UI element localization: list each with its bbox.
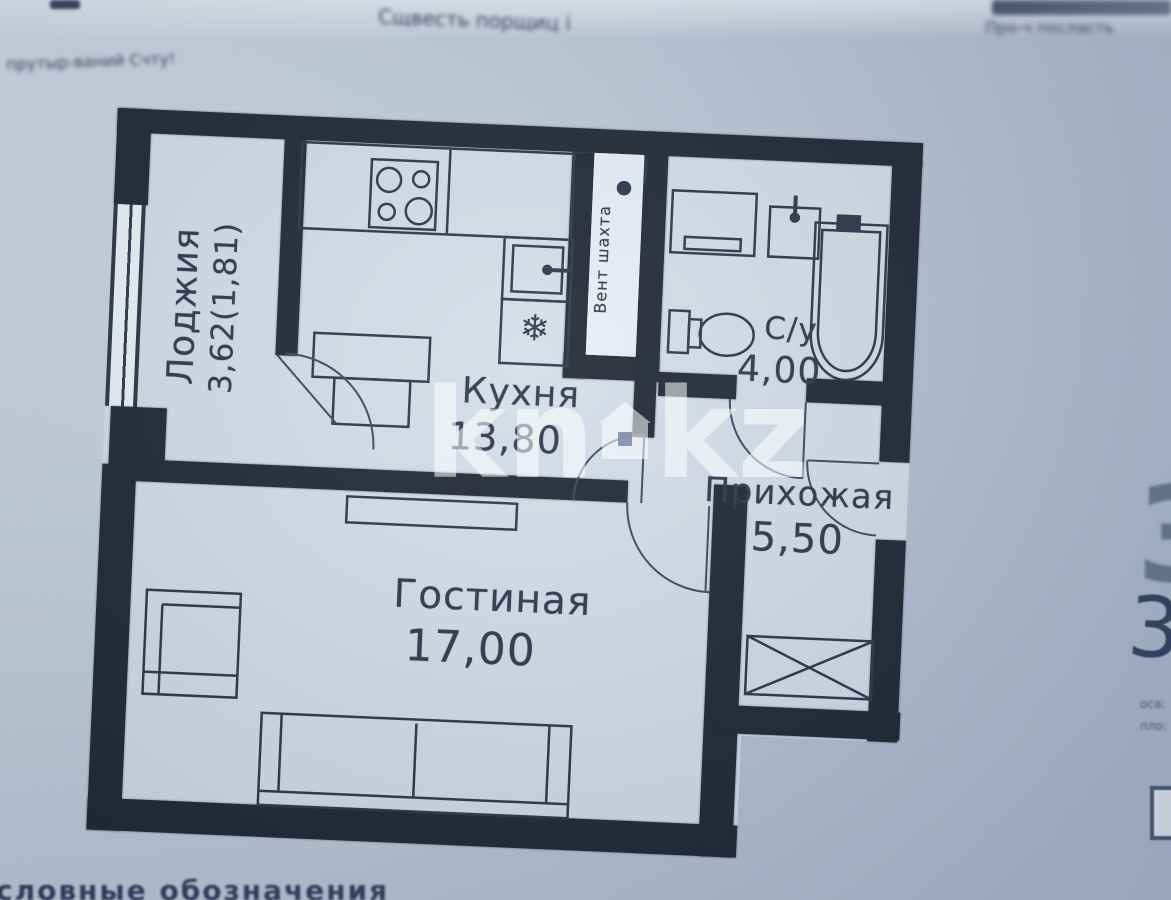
door-arc-balcony [273, 353, 377, 449]
room-area: 5,50 [689, 511, 906, 569]
margin-small-line: пло: [1140, 716, 1167, 738]
snowflake-icon: ❄ [504, 307, 566, 351]
floorplan-photo: прутыр-ваний Счту! Сщвесть порщиц і Про-… [0, 0, 1171, 900]
kitchen-sink-icon [502, 237, 573, 302]
sofa-icon [258, 713, 572, 818]
room-label-living: Гостиная 17,00 [362, 569, 621, 681]
margin-partial-box [1150, 786, 1171, 840]
house-dot-icon [602, 423, 648, 459]
room-name: С/у [720, 309, 862, 353]
washing-machine-icon [670, 190, 757, 256]
room-area: 17,00 [342, 616, 599, 681]
kn-kz-watermark: kn kz [424, 386, 809, 485]
margin-small-line: оса: [1140, 694, 1167, 716]
stove-icon [369, 159, 438, 230]
ink-smudge [50, 0, 80, 9]
handwritten-note-top-left: прутыр-ваний Счту! [6, 49, 176, 74]
wardrobe-icon [745, 636, 873, 699]
margin-digit-handwritten: 3 [1125, 584, 1171, 672]
legend-caption: словные обозначения [0, 874, 389, 900]
washbasin-icon [768, 195, 821, 259]
ink-smudge [992, 0, 1171, 15]
room-label-vent-shaft: Вент шахта [590, 184, 641, 336]
margin-small-text: оса: пло: [1140, 694, 1167, 737]
armchair-icon [142, 590, 240, 698]
watermark-text-left: kn [424, 386, 595, 485]
room-label-loggia: Лоджия 3,62(1,81) [157, 175, 258, 439]
handwritten-note-top-right: Про-ч посласть [985, 18, 1114, 37]
watermark-text-right: kz [655, 386, 810, 485]
